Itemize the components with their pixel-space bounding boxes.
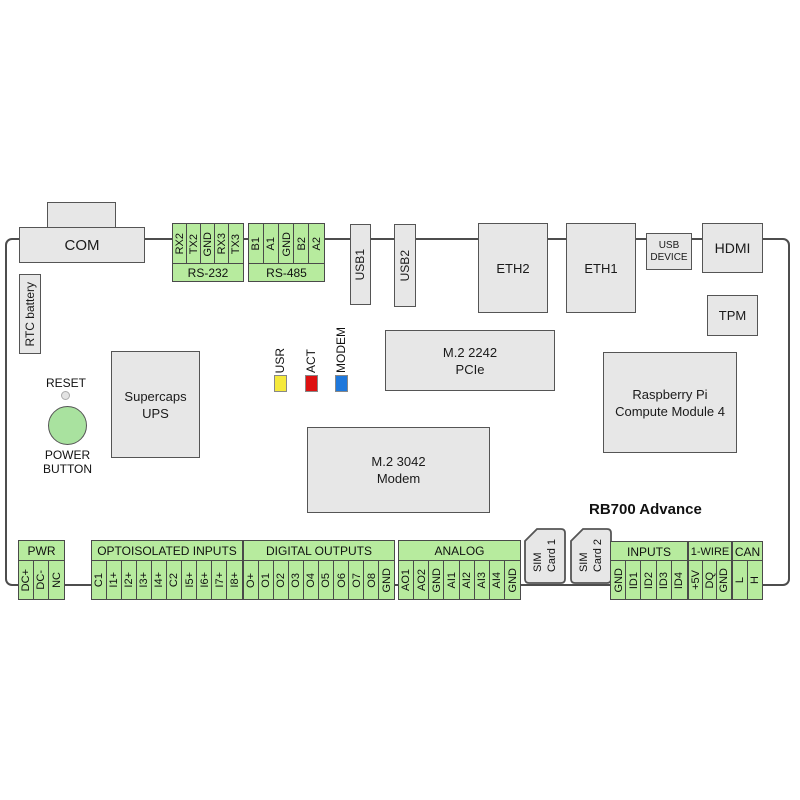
modem-led-label: MODEM bbox=[334, 327, 348, 373]
analog-label: ANALOG bbox=[398, 540, 521, 562]
m2-2242-label: M.2 2242 PCIe bbox=[443, 344, 497, 378]
act-led bbox=[305, 375, 318, 392]
pin-nc: NC bbox=[48, 560, 65, 600]
pin-label: B2 bbox=[296, 237, 308, 250]
pin-label: O+ bbox=[245, 573, 257, 588]
pin-label: I5+ bbox=[184, 572, 196, 588]
pin-label: AI4 bbox=[491, 572, 503, 589]
com-connector-tab bbox=[47, 202, 116, 230]
eth1-connector: ETH1 bbox=[566, 223, 636, 313]
eth2-label: ETH2 bbox=[496, 260, 529, 277]
board-name: RB700 Advance bbox=[589, 501, 719, 518]
rtc-battery-label: RTC battery bbox=[22, 282, 39, 346]
pin-label: H bbox=[749, 576, 761, 584]
rs485-pins: B1 A1 GND B2 A2 bbox=[248, 223, 325, 265]
pin-tx3: TX3 bbox=[228, 223, 244, 265]
pin-gnd: GND bbox=[716, 560, 732, 600]
sim-card-2-label: SIM Card 2 bbox=[577, 539, 605, 572]
analog-connector: ANALOG AO1 AO2 GND AI1 AI2 AI3 AI4 GND bbox=[398, 540, 521, 600]
pin-label: ID4 bbox=[673, 572, 685, 589]
pin-label: A1 bbox=[265, 237, 277, 250]
pwr-connector: PWR DC+ DC- NC bbox=[18, 540, 65, 600]
pin-label: AI3 bbox=[476, 572, 488, 589]
reset-button bbox=[61, 391, 70, 400]
pin-gnd: GND bbox=[504, 560, 521, 600]
m2-3042-label: M.2 3042 Modem bbox=[371, 453, 425, 487]
pin-id4: ID4 bbox=[671, 560, 688, 600]
pin-label: DQ bbox=[704, 572, 716, 589]
compute-module-4: Raspberry Pi Compute Module 4 bbox=[603, 352, 737, 453]
pin-can-h: H bbox=[747, 560, 763, 600]
pwr-label: PWR bbox=[18, 540, 65, 562]
cm4-label: Raspberry Pi Compute Module 4 bbox=[615, 386, 725, 420]
com-connector: COM bbox=[19, 227, 145, 263]
pin-label: DC+ bbox=[20, 569, 32, 591]
usb1-label: USB1 bbox=[352, 249, 369, 280]
pin-label: O6 bbox=[336, 573, 348, 588]
optoisolated-inputs-label: OPTOISOLATED INPUTS bbox=[91, 540, 243, 562]
pin-label: O2 bbox=[275, 573, 287, 588]
pin-label: TX2 bbox=[188, 234, 200, 254]
supercaps-ups: Supercaps UPS bbox=[111, 351, 200, 458]
inputs-label: INPUTS bbox=[610, 541, 688, 562]
analog-pins: AO1 AO2 GND AI1 AI2 AI3 AI4 GND bbox=[398, 560, 521, 600]
pin-label: O3 bbox=[290, 573, 302, 588]
pin-i8: I8+ bbox=[226, 560, 243, 600]
pin-label: C1 bbox=[93, 573, 105, 587]
can-connector: CAN L H bbox=[732, 541, 763, 600]
inputs-pins: GND ID1 ID2 ID3 ID4 bbox=[610, 560, 688, 600]
rs232-connector: RX2 TX2 GND RX3 TX3 RS-232 bbox=[172, 223, 244, 282]
pin-label: AO1 bbox=[400, 569, 412, 591]
sim-card-1-slot: SIM Card 1 bbox=[524, 528, 566, 584]
pin-label: I8+ bbox=[229, 572, 241, 588]
inputs-connector: INPUTS GND ID1 ID2 ID3 ID4 bbox=[610, 541, 688, 600]
pin-label: GND bbox=[431, 568, 443, 592]
pin-label: RX3 bbox=[216, 233, 228, 254]
sim-card-2-slot: SIM Card 2 bbox=[570, 528, 612, 584]
pin-label: O8 bbox=[366, 573, 378, 588]
can-label: CAN bbox=[732, 541, 763, 562]
pin-a2: A2 bbox=[308, 223, 325, 265]
pin-label: I3+ bbox=[138, 572, 150, 588]
pin-label: O7 bbox=[351, 573, 363, 588]
usb2-connector: USB2 bbox=[394, 224, 416, 307]
tpm-label: TPM bbox=[719, 307, 746, 324]
rs232-label: RS-232 bbox=[172, 263, 244, 282]
pin-label: O1 bbox=[260, 573, 272, 588]
pin-label: B1 bbox=[250, 237, 262, 250]
pin-label: GND bbox=[613, 568, 625, 592]
digital-outputs-pins: O+ O1 O2 O3 O4 O5 O6 O7 O8 GND bbox=[243, 560, 395, 600]
pin-label: ID2 bbox=[643, 572, 655, 589]
pin-label: NC bbox=[51, 572, 63, 588]
power-button bbox=[48, 406, 87, 445]
pin-label: O5 bbox=[320, 573, 332, 588]
pin-label: AI1 bbox=[446, 572, 458, 589]
pin-label: GND bbox=[507, 568, 519, 592]
rtc-battery: RTC battery bbox=[19, 274, 41, 354]
usr-led bbox=[274, 375, 287, 392]
eth1-label: ETH1 bbox=[584, 260, 617, 277]
pin-label: C2 bbox=[168, 573, 180, 587]
usb-device-label: USB DEVICE bbox=[650, 240, 687, 264]
pin-label: DC- bbox=[35, 570, 47, 590]
rs485-label: RS-485 bbox=[248, 263, 325, 282]
optoisolated-pins: C1 I1+ I2+ I3+ I4+ C2 I5+ I6+ I7+ I8+ bbox=[91, 560, 243, 600]
pin-label: A2 bbox=[311, 237, 323, 250]
reset-label: RESET bbox=[36, 376, 96, 390]
pin-label: I6+ bbox=[199, 572, 211, 588]
modem-led bbox=[335, 375, 348, 392]
pin-label: AO2 bbox=[416, 569, 428, 591]
tpm-chip: TPM bbox=[707, 295, 758, 336]
board-diagram: COM RTC battery RX2 TX2 GND RX3 TX3 RS-2… bbox=[0, 0, 800, 800]
pin-label: O4 bbox=[305, 573, 317, 588]
one-wire-connector: 1-WIRE +5V DQ GND bbox=[688, 541, 732, 600]
pin-label: L bbox=[734, 577, 746, 583]
pin-label: ID1 bbox=[628, 572, 640, 589]
usr-led-label: USR bbox=[273, 348, 287, 373]
act-led-label: ACT bbox=[304, 349, 318, 373]
pin-label: GND bbox=[381, 568, 393, 592]
pin-label: GND bbox=[718, 568, 730, 592]
pwr-pins: DC+ DC- NC bbox=[18, 560, 65, 600]
com-label: COM bbox=[65, 237, 100, 254]
usb-device-connector: USB DEVICE bbox=[646, 233, 692, 270]
digital-outputs-label: DIGITAL OUTPUTS bbox=[243, 540, 395, 562]
hdmi-label: HDMI bbox=[715, 240, 751, 257]
m2-3042-modem-slot: M.2 3042 Modem bbox=[307, 427, 490, 513]
rs232-pins: RX2 TX2 GND RX3 TX3 bbox=[172, 223, 244, 265]
can-pins: L H bbox=[732, 560, 763, 600]
usb1-connector: USB1 bbox=[350, 224, 371, 305]
sim-card-1-label: SIM Card 1 bbox=[531, 539, 559, 572]
optoisolated-inputs-connector: OPTOISOLATED INPUTS C1 I1+ I2+ I3+ I4+ C… bbox=[91, 540, 243, 600]
pin-label: TX3 bbox=[230, 234, 242, 254]
pin-label: I2+ bbox=[123, 572, 135, 588]
pin-label: I1+ bbox=[108, 572, 120, 588]
hdmi-connector: HDMI bbox=[702, 223, 763, 273]
pin-label: RX2 bbox=[174, 233, 186, 254]
pin-label: I7+ bbox=[214, 572, 226, 588]
pin-label: GND bbox=[281, 232, 293, 256]
pin-label: I4+ bbox=[153, 572, 165, 588]
digital-outputs-connector: DIGITAL OUTPUTS O+ O1 O2 O3 O4 O5 O6 O7 … bbox=[243, 540, 395, 600]
eth2-connector: ETH2 bbox=[478, 223, 548, 313]
pin-gnd: GND bbox=[378, 560, 395, 600]
m2-2242-pcie-slot: M.2 2242 PCIe bbox=[385, 330, 555, 391]
rs485-connector: B1 A1 GND B2 A2 RS-485 bbox=[248, 223, 325, 282]
one-wire-pins: +5V DQ GND bbox=[688, 560, 732, 600]
one-wire-label: 1-WIRE bbox=[688, 541, 732, 562]
supercaps-label: Supercaps UPS bbox=[124, 388, 186, 422]
pin-label: +5V bbox=[690, 570, 702, 590]
pin-label: GND bbox=[202, 232, 214, 256]
pin-label: ID3 bbox=[658, 572, 670, 589]
power-button-label: POWER BUTTON bbox=[27, 448, 108, 476]
pin-label: AI2 bbox=[461, 572, 473, 589]
usb2-label: USB2 bbox=[397, 250, 414, 281]
